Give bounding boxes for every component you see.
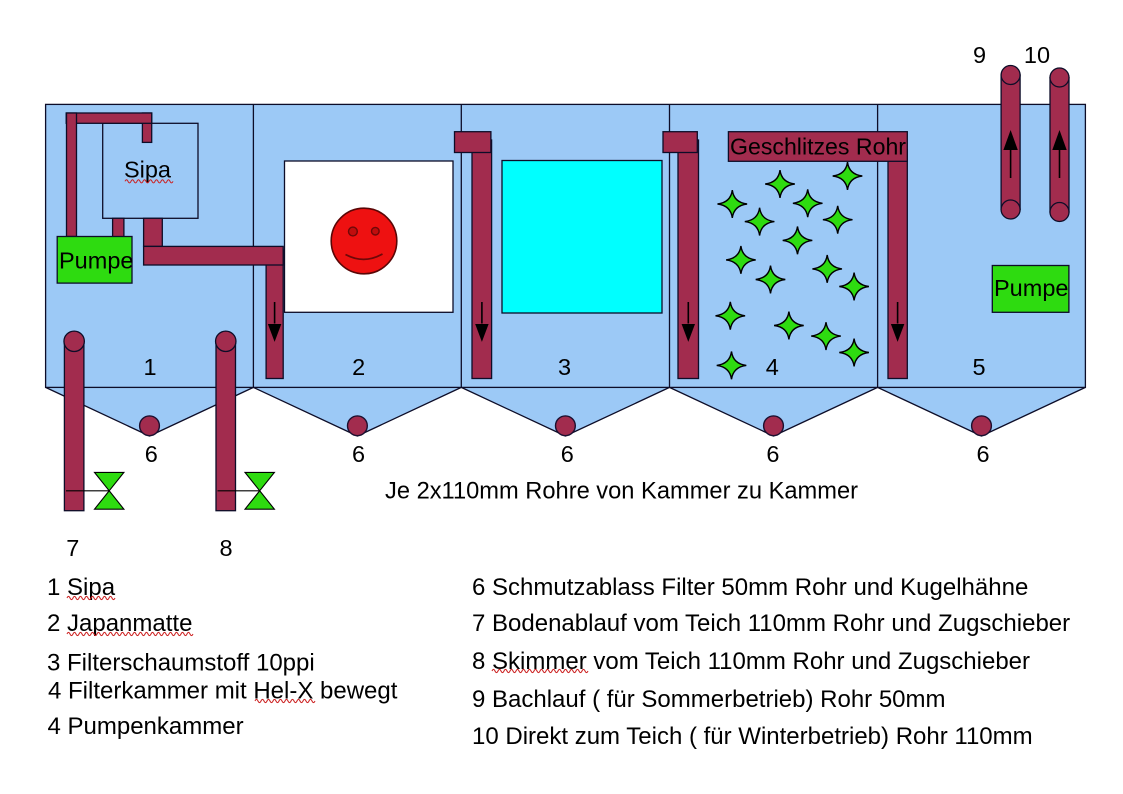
svg-text:Sipa: Sipa bbox=[124, 156, 172, 182]
svg-text:4 Pumpenkammer: 4 Pumpenkammer bbox=[48, 713, 244, 740]
svg-text:6: 6 bbox=[766, 441, 779, 467]
svg-text:6: 6 bbox=[145, 441, 158, 467]
svg-text:3 Filterschaumstoff 10ppi: 3 Filterschaumstoff 10ppi bbox=[47, 650, 315, 677]
svg-text:7: 7 bbox=[66, 535, 79, 561]
svg-text:Pumpe: Pumpe bbox=[59, 248, 133, 274]
svg-text:6: 6 bbox=[352, 441, 365, 467]
svg-text:4: 4 bbox=[766, 354, 779, 380]
svg-text:8 Skimmer vom Teich 110mm Rohr: 8 Skimmer vom Teich 110mm Rohr und Zugsc… bbox=[472, 648, 1030, 675]
svg-text:5: 5 bbox=[972, 354, 985, 380]
svg-text:2: 2 bbox=[352, 354, 365, 380]
svg-text:6: 6 bbox=[976, 441, 989, 467]
svg-text:6: 6 bbox=[561, 441, 574, 467]
svg-text:9: 9 bbox=[973, 42, 986, 68]
svg-text:Geschlitzes Rohr: Geschlitzes Rohr bbox=[730, 133, 906, 159]
svg-text:3: 3 bbox=[558, 354, 571, 380]
svg-text:8: 8 bbox=[219, 535, 232, 561]
svg-text:7 Bodenablauf vom Teich 110mm: 7 Bodenablauf vom Teich 110mm Rohr und Z… bbox=[472, 610, 1070, 637]
svg-text:4 Filterkammer mit Hel-X beweg: 4 Filterkammer mit Hel-X bewegt bbox=[48, 678, 398, 705]
svg-text:1: 1 bbox=[143, 354, 156, 380]
svg-text:10: 10 bbox=[1024, 42, 1050, 68]
svg-text:9 Bachlauf ( für Sommerbetrieb: 9 Bachlauf ( für Sommerbetrieb) Rohr 50m… bbox=[472, 686, 946, 713]
svg-text:6 Schmutzablass Filter 50mm Ro: 6 Schmutzablass Filter 50mm Rohr und Kug… bbox=[472, 574, 1028, 601]
svg-text:Je 2x110mm Rohre von Kammer zu: Je 2x110mm Rohre von Kammer zu Kammer bbox=[385, 478, 858, 505]
svg-text:Pumpe: Pumpe bbox=[994, 275, 1068, 301]
svg-text:10 Direkt zum Teich ( für Wint: 10 Direkt zum Teich ( für Winterbetrieb)… bbox=[472, 723, 1033, 750]
